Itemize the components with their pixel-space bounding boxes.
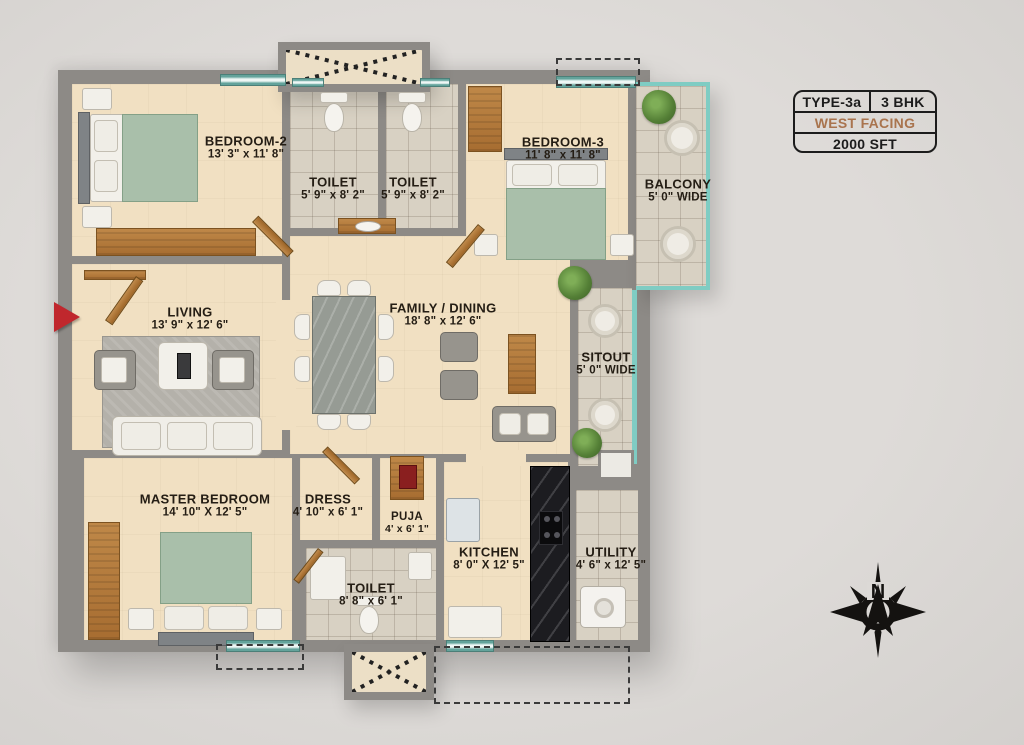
kitchen-sink-icon (446, 498, 480, 542)
room-dims: 8' 8" x 6' 1" (339, 596, 403, 608)
pillow-icon (94, 120, 118, 152)
room-dims: 14' 10" X 12' 5" (140, 507, 271, 519)
dining-chair-icon (317, 280, 341, 296)
dashed-outline-bottom-right (434, 646, 630, 704)
duct-cross-icon (352, 652, 426, 692)
room-label-puja: PUJA 4' x 6' 1" (385, 511, 429, 535)
room-name: BALCONY (645, 177, 711, 192)
dashed-outline-bottom-left (216, 644, 304, 670)
pillow-icon (208, 606, 248, 630)
wardrobe-icon (96, 228, 256, 256)
sofa-cushion (527, 413, 549, 435)
washing-machine-icon (580, 586, 626, 628)
room-name: TOILET (381, 175, 445, 190)
pillow-icon (164, 606, 204, 630)
commode-bowl (402, 103, 422, 132)
duct-bottom (344, 644, 434, 700)
room-dims: 18' 8" x 12' 6" (389, 316, 496, 328)
dining-table-icon (312, 296, 376, 414)
room-label-balcony: BALCONY 5' 0" WIDE (645, 177, 711, 204)
commode-tank (398, 92, 426, 103)
room-name: MASTER BEDROOM (140, 492, 271, 507)
room-dims: 5' 9" x 8' 2" (381, 190, 445, 202)
room-label-kitchen: KITCHEN 8' 0" X 12' 5" (453, 545, 525, 572)
unit-info-badge: TYPE-3a 3 BHK WEST FACING 2000 SFT (793, 90, 937, 153)
room-name: FAMILY / DINING (389, 301, 496, 316)
dining-chair-icon (294, 314, 310, 340)
room-label-sitout: SITOUT 5' 0" WIDE (576, 350, 635, 377)
dining-chair-icon (347, 414, 371, 430)
washbasin-console (338, 218, 396, 234)
burner (554, 532, 560, 538)
armchair-icon (94, 350, 136, 390)
coffee-table-icon (158, 342, 208, 390)
room-dims: 8' 0" X 12' 5" (453, 560, 525, 572)
dining-chair-icon (347, 280, 371, 296)
entrance-arrow-icon (54, 302, 80, 332)
armchair-icon (212, 350, 254, 390)
bed-blanket (122, 114, 198, 202)
sofa-cushion (121, 422, 161, 450)
bed-icon (78, 112, 200, 204)
puja-mandir-icon (390, 456, 424, 500)
hob-icon (539, 511, 563, 545)
room-dims: 13' 3" x 11' 8" (205, 149, 287, 161)
washbasin-icon (408, 552, 432, 580)
commode-bowl (324, 103, 344, 132)
room-name: BEDROOM-3 (522, 135, 604, 150)
kitchen-counter-icon (530, 466, 570, 642)
room-name: UTILITY (576, 545, 646, 560)
burner (554, 516, 560, 522)
room-label-utility: UTILITY 4' 6" x 12' 5" (576, 545, 646, 572)
nightstand-icon (82, 88, 112, 110)
room-name: DRESS (293, 492, 363, 507)
room-label-toilet3: TOILET 8' 8" x 6' 1" (339, 581, 403, 608)
sofa-cushion (499, 413, 521, 435)
sofa-icon (112, 416, 262, 456)
room-dims: 4' x 6' 1" (385, 523, 429, 535)
room-label-bedroom3: BEDROOM-3 11' 8" x 11' 8" (522, 135, 604, 162)
sofa-cushion (213, 422, 253, 450)
unit-type: TYPE-3a (795, 92, 871, 111)
toilet-commode-icon (320, 92, 348, 134)
opening-living-family (276, 300, 296, 430)
dining-chair-icon (317, 414, 341, 430)
room-dims: 11' 8" x 11' 8" (522, 150, 604, 162)
room-name: TOILET (339, 581, 403, 596)
room-dims: 4' 6" x 12' 5" (576, 560, 646, 572)
bed-headboard (78, 112, 90, 204)
badge-row-type: TYPE-3a 3 BHK (795, 92, 935, 111)
burner (544, 516, 550, 522)
room-name: KITCHEN (453, 545, 525, 560)
room-dims: 4' 10" x 6' 1" (293, 507, 363, 519)
wardrobe-icon (88, 522, 120, 640)
floor-plan: BEDROOM-2 13' 3" x 11' 8" TOILET 5' 9" x… (0, 0, 1024, 745)
room-label-dress: DRESS 4' 10" x 6' 1" (293, 492, 363, 519)
vent-toilet1 (292, 78, 324, 87)
armchair-seat (219, 357, 245, 383)
dashed-outline-top (556, 58, 640, 86)
opening-family-kitchen (466, 450, 526, 466)
nightstand-icon (256, 608, 282, 630)
room-name: BEDROOM-2 (205, 134, 287, 149)
vent-toilet2 (420, 78, 450, 87)
armchair-seat (101, 357, 127, 383)
bed-icon (504, 148, 608, 262)
bed-blanket (506, 188, 606, 260)
plant-icon (572, 428, 602, 458)
room-name: LIVING (152, 305, 229, 320)
pillow-icon (512, 164, 552, 186)
burner (544, 532, 550, 538)
bed-icon (158, 530, 254, 646)
round-chair-icon (664, 120, 700, 156)
dining-chair-icon (378, 356, 394, 382)
room-label-bedroom2: BEDROOM-2 13' 3" x 11' 8" (205, 134, 287, 161)
room-name: PUJA (385, 511, 429, 523)
room-dims: 5' 0" WIDE (576, 365, 635, 377)
dining-chair-icon (294, 356, 310, 382)
room-dims: 5' 0" WIDE (645, 192, 711, 204)
room-dims: 5' 9" x 8' 2" (301, 190, 365, 202)
unit-area: 2000 SFT (795, 132, 935, 153)
toilet-commode-icon (398, 92, 426, 134)
sitout-glass-rail (632, 290, 637, 464)
plant-icon (558, 266, 592, 300)
compass-rose-icon: N (826, 560, 930, 660)
washbasin-icon (355, 221, 381, 232)
pillow-icon (558, 164, 598, 186)
room-name: SITOUT (576, 350, 635, 365)
plant-icon (642, 90, 676, 124)
sideboard-icon (508, 334, 536, 394)
wardrobe-icon (468, 86, 502, 152)
unit-bhk: 3 BHK (871, 92, 935, 111)
washer-door (594, 598, 614, 618)
commode-bowl (359, 606, 379, 634)
puja-deity-panel (399, 465, 417, 489)
pillow-icon (94, 160, 118, 192)
lounge-chair-icon (440, 332, 478, 362)
nightstand-icon (128, 608, 154, 630)
round-chair-icon (588, 398, 622, 432)
room-label-family-dining: FAMILY / DINING 18' 8" x 12' 6" (389, 301, 496, 328)
room-label-living: LIVING 13' 9" x 12' 6" (152, 305, 229, 332)
room-label-toilet2: TOILET 5' 9" x 8' 2" (381, 175, 445, 202)
room-dims: 13' 9" x 12' 6" (152, 320, 229, 332)
bench-sofa-icon (492, 406, 556, 442)
nightstand-icon (82, 206, 112, 228)
kitchen-cabinet-icon (448, 606, 502, 638)
tv-console-icon (177, 353, 191, 379)
room-label-toilet1: TOILET 5' 9" x 8' 2" (301, 175, 365, 202)
round-chair-icon (660, 226, 696, 262)
unit-facing: WEST FACING (795, 111, 935, 132)
room-name: TOILET (301, 175, 365, 190)
bed-blanket (160, 532, 252, 604)
round-chair-icon (588, 304, 622, 338)
room-label-master-bedroom: MASTER BEDROOM 14' 10" X 12' 5" (140, 492, 271, 519)
commode-tank (320, 92, 348, 103)
lounge-chair-icon (440, 370, 478, 400)
sofa-cushion (167, 422, 207, 450)
window-bedroom2 (220, 74, 286, 86)
nightstand-icon (610, 234, 634, 256)
shaft-box (598, 450, 634, 480)
